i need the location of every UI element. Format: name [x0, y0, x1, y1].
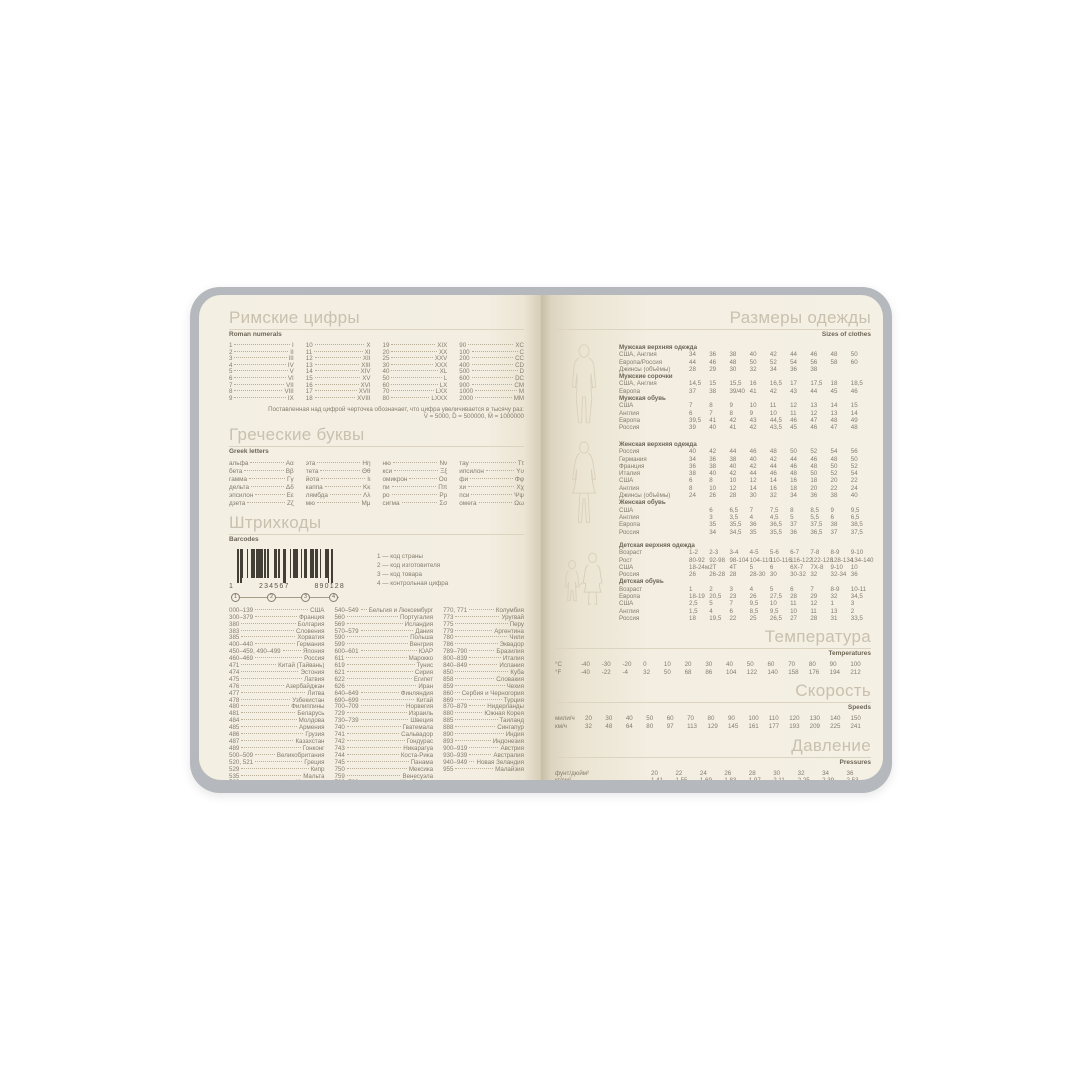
table-row: Франция363840424446485052	[619, 463, 871, 470]
table-row: 484Молдова730–739Швеция885Таиланд	[229, 718, 524, 725]
table-row: США6810121416182022	[619, 477, 871, 484]
barcode-graphic: 1 234567 890128 1 2 3 4	[229, 549, 347, 604]
table-row: Англия1,5468,59,51011132	[619, 608, 871, 615]
barcode-part-markers: 1 2 3 4	[229, 592, 347, 604]
size-group-title: Мужские сорочки	[619, 373, 871, 380]
womens-sizes-block: Женская верхняя одеждаРоссия404244464850…	[555, 441, 871, 537]
section-subtitle-temperature: Temperatures	[555, 649, 871, 658]
table-row: 385Хорватия590Польша780Чили	[229, 635, 524, 642]
table-row: 477Литва640–649Финляндия860Сербия и Черн…	[229, 691, 524, 698]
roman-note: Поставленная над цифрой черточка обознач…	[229, 406, 524, 420]
womens-sizes-table: Женская верхняя одеждаРоссия404244464850…	[619, 441, 871, 537]
pressure-conversion-table: фунт/дюйм²202224262830323436кг/см²1,411,…	[555, 770, 871, 780]
section-subtitle-barcodes: Barcodes	[229, 535, 524, 544]
section-title-speed: Скорость	[555, 682, 871, 700]
table-row: Европа18-1920,5232627,528293234,5	[619, 593, 871, 600]
children-silhouette-icon	[555, 542, 613, 622]
table-row: 460–469Россия611Марокко800–839Италия	[229, 656, 524, 663]
legend-item: 1 — код страны	[377, 552, 448, 561]
table-row: 300–379Франция560Португалия773Уругвай	[229, 615, 524, 622]
table-row: км/ч324864809711312914516117719320922524…	[555, 723, 871, 731]
table-row: 6VI15XV50L600DC	[229, 376, 524, 383]
table-row: альфаΑαэтаΗηнюΝνтауΤτ	[229, 460, 524, 468]
mens-sizes-block: Мужская верхняя одеждаСША, Англия3436384…	[555, 344, 871, 436]
table-row: 000–139США540–549Бельгия и Люксембург770…	[229, 608, 524, 615]
table-row: 486Грузия741Сальвадор890Индия	[229, 732, 524, 739]
table-row: 383Словения570–579Дания779Аргентина	[229, 629, 524, 636]
table-row: Россия1819,5222526,527283133,5	[619, 615, 871, 622]
table-row: США, Англия343638404244464850	[619, 351, 871, 358]
table-row: Возраст12345678-910-11	[619, 586, 871, 593]
table-row: 487Казахстан742Гондурас893Индонезия	[229, 739, 524, 746]
section-roman-numerals: Римские цифры Roman numerals 1I10X19XIX9…	[229, 309, 524, 420]
table-row: 4IV13XIII30XXX400CD	[229, 363, 524, 370]
table-row: Россия2626-282828-303030-323232-3436	[619, 571, 871, 578]
table-row: США789101112131415	[619, 402, 871, 409]
section-subtitle-pressure: Pressures	[555, 758, 871, 767]
table-row: бетаΒβтетаΘθксиΞξипсилонΥυ	[229, 468, 524, 476]
man-silhouette-icon	[555, 344, 613, 436]
size-group-title: Детская обувь	[619, 578, 871, 585]
table-row: США, Англия14,51515,51616,51717,51818,5	[619, 380, 871, 387]
section-greek-letters: Греческие буквы Greek letters альфаΑαэта…	[229, 426, 524, 507]
barcode-digits: 1 234567 890128	[229, 583, 347, 590]
table-row: Рост80-9292-9898-104104-110110-116116-12…	[619, 557, 871, 564]
table-row: 1I10X19XIX90XC	[229, 343, 524, 350]
section-title-sizes: Размеры одежды	[555, 309, 871, 327]
section-pressure: Давление Pressures фунт/дюйм²20222426283…	[555, 737, 871, 780]
marker-connector-line	[233, 597, 339, 598]
table-row: Россия404244464850525456	[619, 448, 871, 455]
table-row: дзетаΖζмюΜμсигмаΣσомегаΩω	[229, 500, 524, 508]
table-row: 520, 521Греция745Панама940–949Новая Зела…	[229, 760, 524, 767]
size-group-title: Детская верхняя одежда	[619, 542, 871, 549]
table-row: 8VIII17XVII70LXX1000M	[229, 389, 524, 396]
table-row: эпсилонΕεлямбдаΛλроΡρпсиΨψ	[229, 492, 524, 500]
barcode-bars-icon	[229, 549, 347, 583]
table-row: Англия67891011121314	[619, 410, 871, 417]
table-row: фунт/дюйм²202224262830323436	[555, 770, 871, 778]
table-row: 474Эстония621Сирия850Куба	[229, 670, 524, 677]
table-row: США66,577,588,599,5	[619, 507, 871, 514]
table-row: Европа3535,53636,53737,53838,5	[619, 521, 871, 528]
open-pages: Римские цифры Roman numerals 1I10X19XIX9…	[199, 295, 883, 780]
table-row: 7VII16XVI60LX900CM	[229, 383, 524, 390]
mens-sizes-table: Мужская верхняя одеждаСША, Англия3436384…	[619, 344, 871, 436]
size-group-title: Женская верхняя одежда	[619, 441, 871, 448]
table-row: Россия3940414243,545464748	[619, 424, 871, 431]
size-group-title: Женская обувь	[619, 499, 871, 506]
woman-silhouette-icon	[555, 441, 613, 537]
table-row: гаммаΓγйотаΙιомикронΟοфиΦφ	[229, 476, 524, 484]
barcode-legend: 1 — код страны2 — код изготовителя3 — ко…	[377, 552, 448, 604]
table-row: 450–459, 490–499Япония600–601ЮАР789–790Б…	[229, 649, 524, 656]
section-speed: Скорость Speeds мили/ч203040506070809010…	[555, 682, 871, 730]
table-row: Европа373839/40414243444546	[619, 388, 871, 395]
greek-letters-table: альфаΑαэтаΗηнюΝνтауΤτбетаΒβтетаΘθксиΞξип…	[229, 460, 524, 507]
left-page: Римские цифры Roman numerals 1I10X19XIX9…	[199, 295, 541, 780]
size-group-title: Мужская обувь	[619, 395, 871, 402]
table-row: Джинсы (объёмы)242628303234363840	[619, 492, 871, 499]
temperature-conversion-table: °C-40-30-200102030405060708090100°F-40-2…	[555, 661, 871, 676]
table-row: 471Китай (Тайвань)619Тунис840–849Испания	[229, 663, 524, 670]
section-title-greek: Греческие буквы	[229, 426, 524, 444]
childrens-sizes-block: Детская верхняя одеждаВозраст1-22-33-44-…	[555, 542, 871, 622]
section-temperature: Температура Temperatures °C-40-30-200102…	[555, 628, 871, 676]
table-row: 481Беларусь729Израиль880Южная Корея	[229, 711, 524, 718]
table-row: 478Узбекистан690–699Китай869Турция	[229, 698, 524, 705]
section-title-barcodes: Штрихкоды	[229, 514, 524, 532]
table-row: 485Армения740Гватемала888Сингапур	[229, 725, 524, 732]
table-row: 535Мальта759Венесуэла	[229, 774, 524, 780]
legend-item: 4 — контрольная цифра	[377, 579, 448, 588]
table-row: 9IX18XVIII80LXXX2000MM	[229, 396, 524, 403]
table-row: 380Болгария569Исландия775Перу	[229, 622, 524, 629]
right-page: Размеры одежды Sizes of clothes Мужская …	[541, 295, 883, 780]
legend-item: 3 — код товара	[377, 570, 448, 579]
table-row: мили/ч2030405060708090100110120130140150	[555, 715, 871, 723]
roman-numerals-table: 1I10X19XIX90XC2II11XI20XX100C3III12XII25…	[229, 343, 524, 402]
section-title-roman: Римские цифры	[229, 309, 524, 327]
table-row: 3III12XII25XXV200CC	[229, 356, 524, 363]
table-row: 529Кипр750Мексика955Малайзия	[229, 767, 524, 774]
section-subtitle-sizes: Sizes of clothes	[555, 330, 871, 339]
table-row: 480Филиппины700–709Норвегия870–879Нидерл…	[229, 704, 524, 711]
section-clothing-sizes: Размеры одежды Sizes of clothes	[555, 309, 871, 339]
table-row: Возраст1-22-33-44-55-66-77-88-99-10	[619, 549, 871, 556]
section-subtitle-speed: Speeds	[555, 703, 871, 712]
section-subtitle-greek: Greek letters	[229, 447, 524, 456]
section-title-temperature: Температура	[555, 628, 871, 646]
section-barcodes: Штрихкоды Barcodes 1 234567 890128	[229, 514, 524, 780]
speed-conversion-table: мили/ч2030405060708090100110120130140150…	[555, 715, 871, 730]
table-row: 475Латвия622Египет858Словакия	[229, 677, 524, 684]
table-row: 2II11XI20XX100C	[229, 350, 524, 357]
table-row: США18-24м2T4T566X-77X-89-1010	[619, 564, 871, 571]
marker-circle-3: 3	[301, 593, 310, 602]
section-subtitle-roman: Roman numerals	[229, 330, 524, 339]
notebook-spread-photo: Римские цифры Roman numerals 1I10X19XIX9…	[190, 287, 892, 793]
marker-circle-2: 2	[267, 593, 276, 602]
marker-circle-4: 4	[329, 593, 338, 602]
table-row: кг/см²1,411,551,691,831,972,112,252,392,…	[555, 777, 871, 780]
table-row: 489Гонконг743Никарагуа900–919Австрия	[229, 746, 524, 753]
table-row: Англия81012141618202224	[619, 485, 871, 492]
marker-circle-1: 1	[231, 593, 240, 602]
table-row: Англия33,544,555,566,5	[619, 514, 871, 521]
table-row: Джинсы (объёмы)28293032343638	[619, 366, 871, 373]
section-title-pressure: Давление	[555, 737, 871, 755]
table-row: США2,5579,510111213	[619, 600, 871, 607]
childrens-sizes-table: Детская верхняя одеждаВозраст1-22-33-44-…	[619, 542, 871, 622]
legend-item: 2 — код изготовителя	[377, 561, 448, 570]
table-row: Европа39,541424344,546474849	[619, 417, 871, 424]
table-row: °F-40-22-432506886104122140158176194212	[555, 669, 871, 677]
table-row: Европа/Россия444648505254565860	[619, 359, 871, 366]
table-row: Германия343638404244464850	[619, 456, 871, 463]
table-row: 5V14XIV40XL500D	[229, 369, 524, 376]
barcode-example: 1 234567 890128 1 2 3 4	[229, 549, 524, 604]
table-row: Россия3434,53535,53636,53737,5	[619, 529, 871, 536]
size-group-title: Мужская верхняя одежда	[619, 344, 871, 351]
table-row: дельтаΔδкаппаΚκпиΠπхиΧχ	[229, 484, 524, 492]
table-row: Италия384042444648505254	[619, 470, 871, 477]
table-row: °C-40-30-200102030405060708090100	[555, 661, 871, 669]
barcode-country-codes-table: 000–139США540–549Бельгия и Люксембург770…	[229, 608, 524, 780]
